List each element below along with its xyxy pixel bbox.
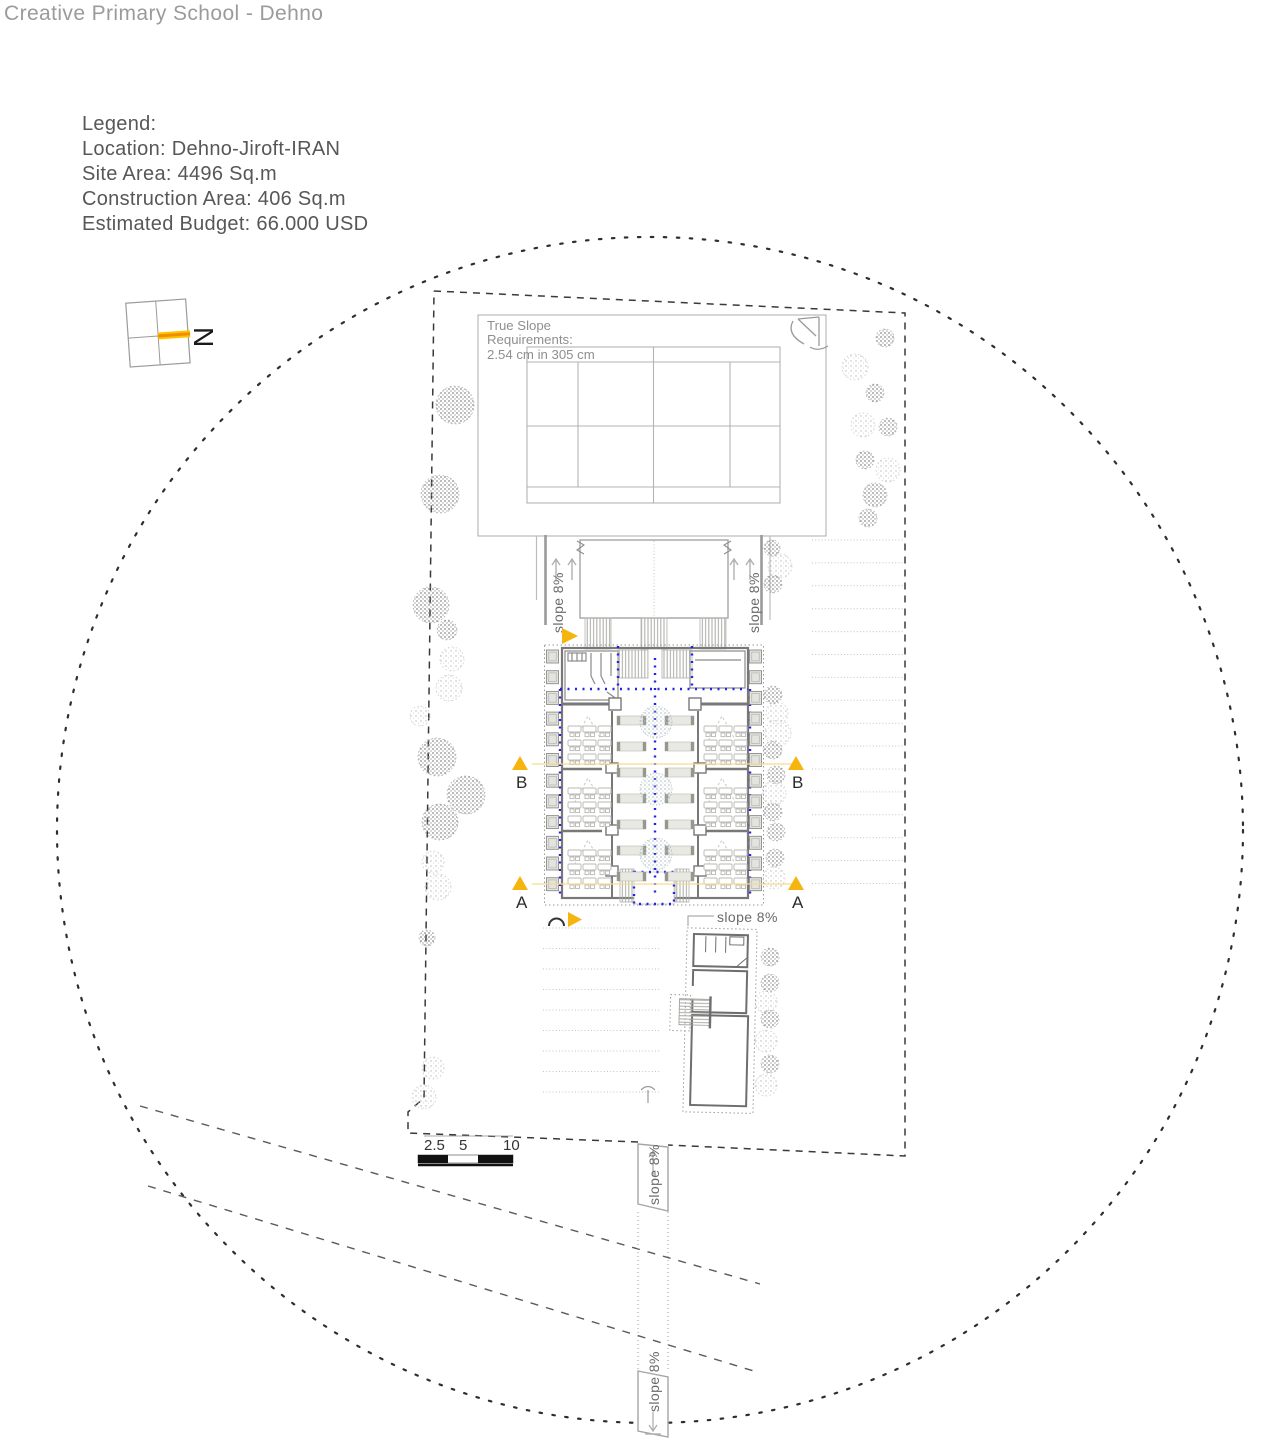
tree-icon — [761, 1055, 779, 1073]
tree-icon — [851, 413, 875, 437]
courtyard-ramp: slope 8% slope 8% — [537, 535, 771, 649]
tree-icon — [764, 741, 782, 759]
tree-icon — [879, 418, 897, 436]
slope-label-ramp-lower: slope 8% — [646, 1351, 662, 1412]
section-label-b-right: B — [792, 773, 803, 792]
site-plan-canvas: Creative Primary School - Dehno Legend: … — [0, 0, 1280, 1440]
section-arrow-icon — [562, 628, 578, 644]
tree-icon — [768, 554, 792, 578]
tree-icon — [767, 823, 785, 841]
tree-icon — [763, 867, 785, 889]
site-plan-drawing: N True Slope Requirements: 2.54 cm in 30… — [0, 0, 1280, 1440]
tree-icon — [762, 781, 786, 805]
svg-text:2.54 cm in 305 cm: 2.54 cm in 305 cm — [487, 347, 595, 362]
section-marker-b-left-icon — [512, 756, 528, 770]
svg-text:Requirements:: Requirements: — [487, 332, 573, 347]
tree-icon — [421, 475, 459, 513]
tree-icon — [764, 540, 780, 556]
basketball-hoop-icon — [791, 317, 828, 349]
tree-icon — [422, 804, 458, 840]
sapling-icon — [641, 1087, 655, 1104]
tree-icon — [410, 706, 430, 726]
stairs — [679, 999, 711, 1026]
south-wing-slope: slope 8% — [688, 909, 778, 926]
sports-court: True Slope Requirements: 2.54 cm in 305 … — [478, 315, 828, 536]
tree-icon — [413, 587, 449, 623]
section-marker-b-right-icon — [788, 756, 804, 770]
tree-icon — [425, 874, 451, 900]
tree-icon — [863, 483, 887, 507]
svg-text:True Slope: True Slope — [487, 318, 551, 333]
section-label-b-left: B — [516, 773, 527, 792]
scale-tick-2-5: 2.5 — [424, 1137, 445, 1154]
tree-icon — [436, 386, 474, 424]
tree-icon — [764, 803, 782, 821]
main-building — [545, 645, 764, 905]
slope-label-right: slope 8% — [746, 572, 762, 633]
tree-icon — [842, 354, 868, 380]
tree-icon — [422, 1057, 444, 1079]
tree-icon — [766, 849, 784, 867]
site-boundary-circle — [57, 237, 1243, 1423]
tree-icon — [876, 329, 894, 347]
section-marker-c-icon — [549, 919, 564, 926]
tree-icon — [437, 620, 457, 640]
tree-icon — [764, 575, 782, 593]
slope-label-south-wing: slope 8% — [717, 909, 778, 925]
tree-icon — [440, 647, 464, 671]
washroom-north — [565, 651, 618, 700]
stair-strip — [585, 618, 611, 649]
south-wing-building — [668, 928, 757, 1114]
slope-label-left: slope 8% — [550, 572, 566, 633]
tree-icon — [419, 930, 435, 946]
tree-icon — [764, 686, 782, 704]
section-marker-a-right-icon — [788, 876, 804, 890]
tree-icon — [412, 1085, 436, 1109]
north-arrow — [126, 299, 192, 367]
entry-ramp: slope 8% slope 8% — [638, 1144, 668, 1437]
tree-icon — [866, 384, 884, 402]
scale-tick-5: 5 — [459, 1137, 467, 1154]
stairs — [618, 650, 648, 678]
tree-icon — [761, 1010, 779, 1028]
section-label-a-left: A — [516, 893, 528, 912]
tree-icon — [761, 974, 779, 992]
tree-icon — [755, 1030, 777, 1052]
stair-strip — [700, 618, 726, 649]
tree-icon — [436, 675, 462, 701]
slope-label-ramp-upper: slope 8% — [646, 1144, 662, 1205]
room-north-east — [690, 651, 745, 688]
section-arrow-icon — [568, 912, 582, 927]
tree-icon — [422, 851, 444, 873]
tree-icon — [859, 509, 877, 527]
tree-icon — [755, 1074, 777, 1096]
true-slope-note: True Slope Requirements: 2.54 cm in 305 … — [487, 318, 595, 362]
tree-icon — [418, 738, 456, 776]
stairs — [662, 650, 692, 678]
courtyard-trees — [640, 706, 672, 870]
court-grid — [527, 347, 780, 503]
tree-icon — [447, 776, 485, 814]
section-label-a-right: A — [792, 893, 804, 912]
scale-bar: 2.5 5 10 — [418, 1136, 520, 1165]
north-letter: N — [188, 327, 219, 347]
scale-tick-10: 10 — [503, 1137, 520, 1154]
stair-strip — [641, 618, 667, 649]
tree-icon — [876, 458, 900, 482]
terrain-dashed-lines — [140, 1106, 760, 1372]
tree-icon — [755, 991, 777, 1013]
tree-icon — [761, 948, 779, 966]
section-marker-a-left-icon — [512, 876, 528, 890]
tree-icon — [856, 451, 874, 469]
